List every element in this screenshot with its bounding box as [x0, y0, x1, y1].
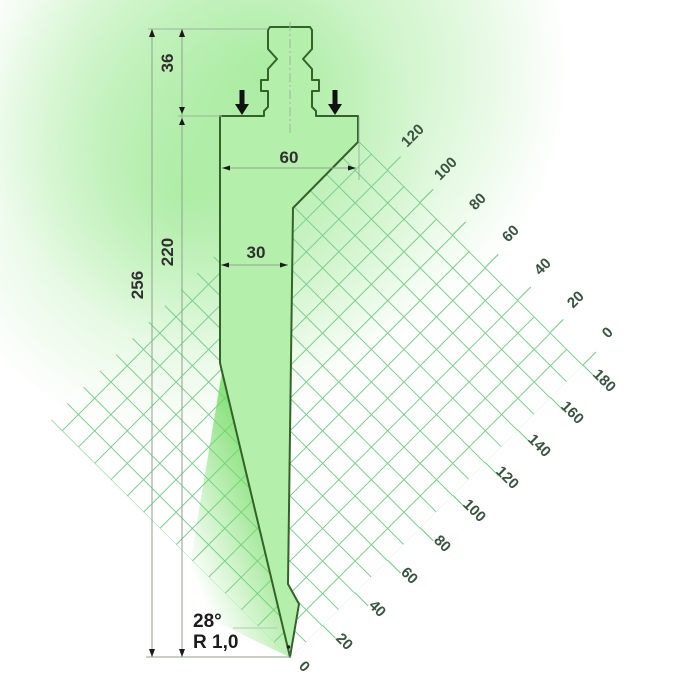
punch-technical-drawing: 0 20 40 60 80 100 120 0 20 40 60 80 100 … [0, 0, 700, 700]
drawing-canvas: 0 20 40 60 80 100 120 0 20 40 60 80 100 … [0, 0, 700, 700]
dim-label-body-width: 30 [247, 243, 266, 262]
dim-label-head-width: 60 [280, 148, 299, 167]
dim-label-working-height: 220 [158, 238, 177, 266]
tip-angle-label: 28° [193, 611, 222, 632]
tip-radius-dot [287, 645, 290, 648]
tip-radius-label: R 1,0 [193, 632, 238, 653]
dim-label-total-height: 256 [128, 271, 147, 299]
dim-label-shank-height: 36 [158, 54, 177, 73]
